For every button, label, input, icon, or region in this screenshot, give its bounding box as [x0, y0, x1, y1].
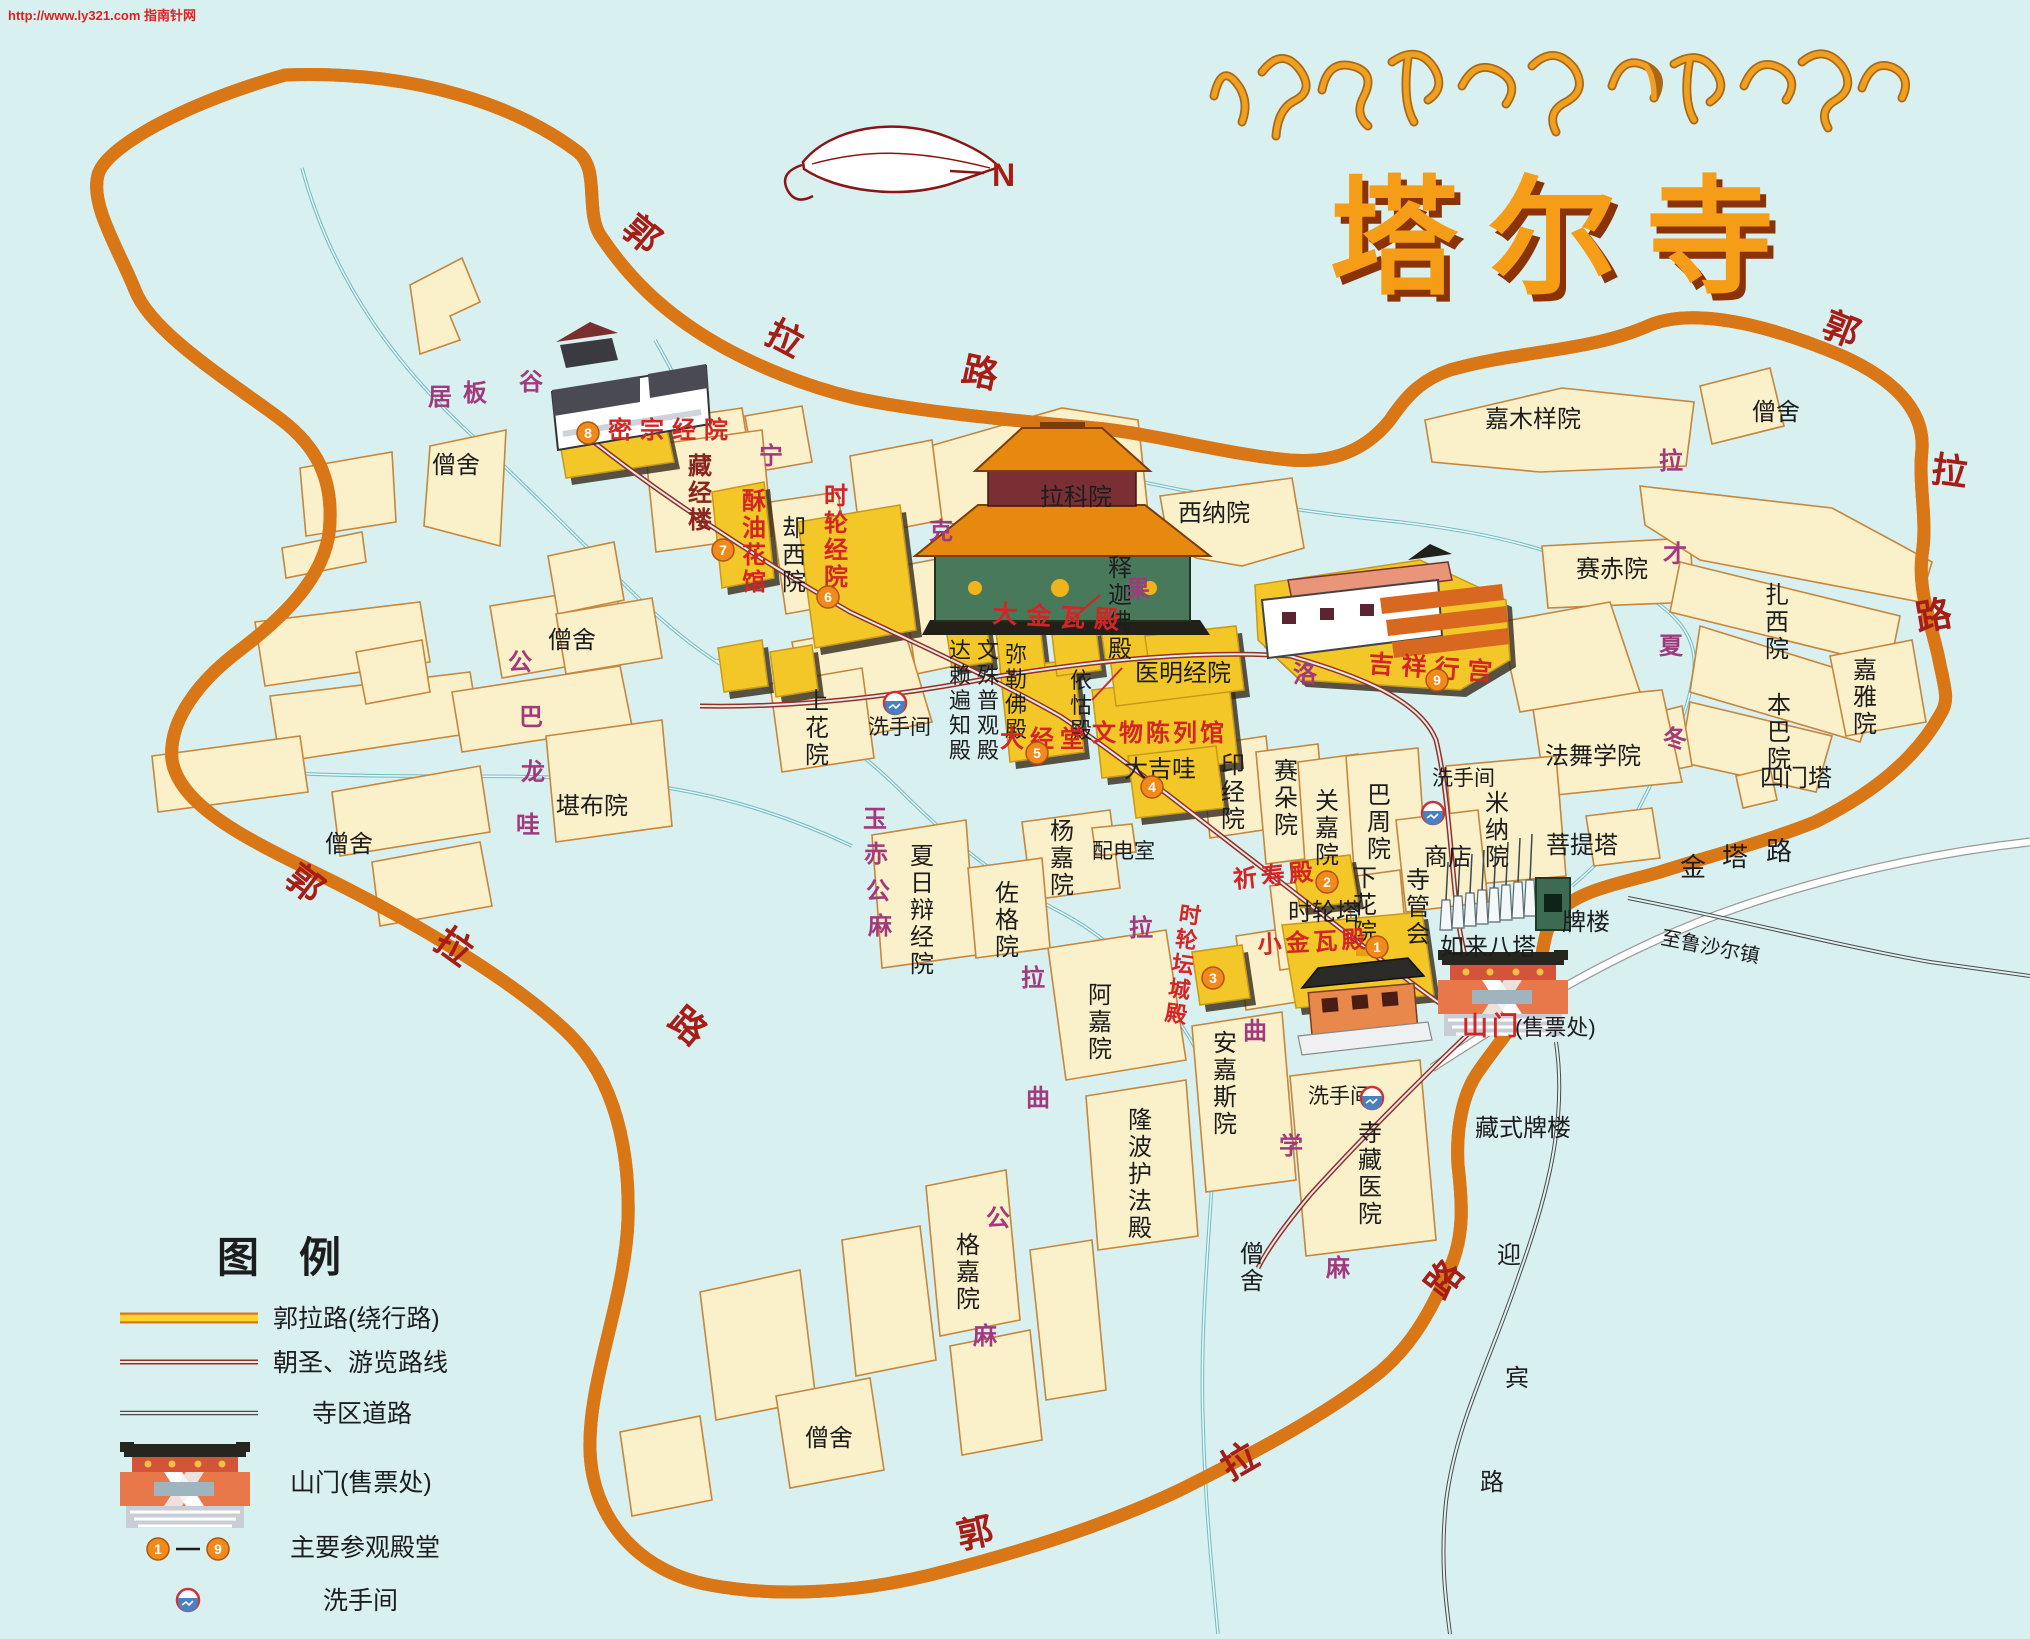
hall-number-badge: 6: [817, 586, 839, 608]
map-label: 学: [1279, 1132, 1303, 1160]
map-label: 玉: [863, 806, 887, 833]
map-label: 文物陈列馆: [1092, 719, 1227, 747]
lesser-golden-tiled-hall-illustration: [1298, 952, 1432, 1055]
map-label: 时轮经院: [824, 483, 848, 591]
svg-text:9: 9: [1433, 672, 1441, 688]
map-label: 谷: [519, 369, 544, 396]
map-label: 米纳院: [1485, 790, 1509, 871]
svg-text:6: 6: [824, 589, 832, 605]
map-label: 巴周院: [1367, 782, 1391, 863]
map-label: 寺管会: [1406, 867, 1430, 948]
map-label: 文殊普观殿: [977, 638, 999, 763]
map-label: 路: [1766, 836, 1792, 866]
map-label: 巴: [519, 704, 543, 731]
map-label: 隆波护法殿: [1128, 1107, 1152, 1242]
map-label: 杨嘉院: [1050, 818, 1074, 899]
map-label: 山门(售票处): [290, 1469, 432, 1497]
map-label: 僧舍: [1240, 1241, 1264, 1295]
map-label: 格嘉院: [956, 1232, 980, 1313]
svg-text:1: 1: [154, 1541, 162, 1557]
hall-number-badge: 9: [1426, 669, 1448, 691]
map-label: 洗手间: [323, 1587, 398, 1615]
map-label: 嘉木样院: [1485, 406, 1581, 433]
map-label: 拉科院: [1040, 484, 1112, 511]
map-label: 宁: [759, 442, 783, 470]
map-label: 本巴院: [1767, 692, 1791, 773]
map-label: 赛赤院: [1576, 556, 1648, 583]
map-label: 山门: [1462, 1011, 1522, 1041]
map-label: 藏经楼: [688, 453, 712, 534]
map-label: 果: [1126, 576, 1150, 603]
map-label: 才: [1663, 541, 1687, 568]
map-label: 西纳院: [1178, 500, 1250, 527]
map-label: 堪布院: [556, 793, 628, 820]
map-label: 洗手间: [868, 716, 931, 739]
map-label: 关嘉院: [1315, 788, 1339, 869]
map-label: 医明经院: [1135, 660, 1231, 687]
svg-text:2: 2: [1323, 874, 1331, 890]
hall-number-badge: 3: [1202, 967, 1224, 989]
map-label: 宾: [1505, 1365, 1529, 1392]
map-label: 安嘉斯院: [1213, 1030, 1237, 1138]
map-label: 拉: [1129, 914, 1153, 942]
map-label: 主要参观殿堂: [290, 1534, 440, 1562]
map-label: 僧舍: [805, 1425, 853, 1452]
map-label: 寺藏医院: [1358, 1120, 1382, 1228]
hall-number-badge: 1: [147, 1538, 169, 1560]
map-label: 寺区道路: [312, 1400, 412, 1428]
svg-text:1: 1: [1373, 939, 1381, 955]
map-label: 拉: [1021, 964, 1045, 992]
compass-north-label: N: [992, 157, 1015, 193]
map-label: 扎西院: [1765, 582, 1789, 663]
map-label: 牌楼: [1562, 909, 1610, 936]
map-label: 龙: [521, 759, 545, 786]
url-watermark: http://www.ly321.com 指南针网: [8, 8, 196, 23]
map-label: 赤: [864, 840, 888, 868]
map-label: 路: [1480, 1469, 1504, 1496]
map-label: 配电室: [1092, 840, 1155, 863]
hall-number-badge: 9: [207, 1538, 229, 1560]
map-label: 拉: [1659, 447, 1683, 475]
map-label: 曲: [1026, 1085, 1050, 1112]
map-label: 佐格院: [995, 880, 1019, 961]
map-label: 如来八塔: [1440, 934, 1536, 961]
svg-text:3: 3: [1209, 970, 1217, 986]
hall-number-badge: 4: [1141, 776, 1163, 798]
map-label: 僧舍: [548, 627, 596, 654]
map-canvas: N 塔尔寺: [0, 0, 2030, 1634]
map-title: 塔尔寺: [1330, 167, 1804, 310]
map-label: 僧舍: [325, 831, 373, 858]
map-label: 公: [986, 1205, 1010, 1232]
svg-text:8: 8: [584, 425, 592, 441]
map-label: 麻: [972, 1322, 998, 1350]
map-label: 上花院: [805, 688, 829, 769]
map-label: 菩提塔: [1546, 832, 1618, 859]
map-label: 密宗经院: [608, 416, 736, 444]
map-label: 洛: [1293, 661, 1318, 688]
hall-number-badge: 8: [577, 422, 599, 444]
svg-text:7: 7: [719, 542, 727, 558]
map-label: 居: [428, 384, 452, 411]
map-label: 僧舍: [1752, 399, 1800, 426]
map-label: 赛朵院: [1274, 758, 1298, 839]
map-label: 曲: [1243, 1018, 1267, 1045]
map-label: 商店: [1424, 844, 1472, 871]
toilet-icon: [884, 692, 906, 715]
hall-number-badge: 1: [1366, 936, 1388, 958]
map-label: 迎: [1497, 1242, 1521, 1269]
map-label: 嘉雅院: [1853, 657, 1877, 738]
map-label: 公: [508, 649, 532, 676]
map-label: 印经院: [1221, 752, 1245, 833]
hall-number-badge: 5: [1026, 742, 1048, 764]
map-label: 冬: [1663, 725, 1687, 753]
map-label: 阿嘉院: [1088, 982, 1112, 1063]
hall-number-badge: 7: [712, 539, 734, 561]
toilet-icon: [177, 1589, 199, 1612]
map-label: 哇: [516, 812, 540, 839]
map-label: 夏: [1659, 633, 1684, 660]
map-label: (售票处): [1515, 1015, 1596, 1040]
map-label: 公: [866, 878, 890, 905]
map-label: 郭拉路(绕行路): [273, 1305, 440, 1333]
map-label: 达赖遍知殿: [949, 638, 971, 763]
map-label: 法舞学院: [1545, 743, 1641, 770]
map-label: 夏日辩经院: [910, 843, 934, 978]
map-label: 洗手间: [1432, 767, 1495, 790]
legend-gate-icon: [120, 1442, 250, 1528]
map-label: 金: [1680, 852, 1706, 882]
map-label: 板: [463, 380, 488, 407]
map-label: 僧舍: [432, 452, 480, 479]
map-label: 小金瓦殿: [1257, 925, 1370, 959]
toilet-icon: [1422, 802, 1444, 825]
map-label: 塔: [1722, 842, 1748, 872]
toilet-icon: [1361, 1087, 1383, 1110]
legend-title: 图例: [217, 1234, 381, 1281]
map-label: 却西院: [782, 515, 806, 596]
svg-text:4: 4: [1148, 779, 1156, 795]
map-label: 克: [929, 518, 953, 545]
map-label: 朝圣、游览路线: [273, 1349, 448, 1377]
map-label: 麻: [867, 912, 893, 940]
map-label: 时轮塔: [1288, 899, 1360, 926]
svg-text:9: 9: [214, 1541, 222, 1557]
kumbum-monastery-map: N 塔尔寺: [0, 0, 2030, 1634]
map-label: 拉: [1929, 448, 1970, 494]
map-label: 酥油花馆: [742, 488, 766, 596]
map-label: 藏式牌楼: [1475, 1115, 1571, 1142]
hall-number-badge: 2: [1316, 871, 1338, 893]
svg-text:5: 5: [1033, 745, 1041, 761]
map-label: 麻: [1325, 1254, 1351, 1282]
